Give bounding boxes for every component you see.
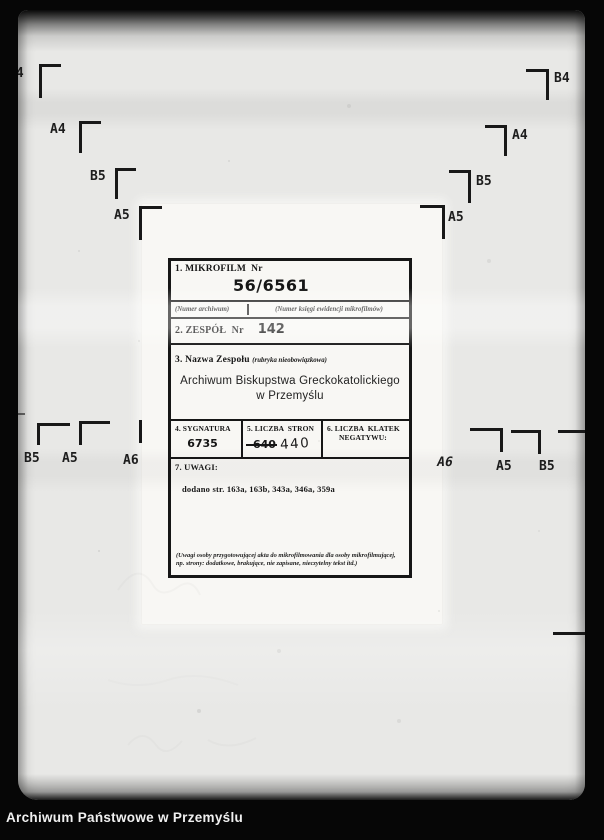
liczba-klatek-label-line2: NEGATYWU: — [339, 433, 406, 442]
archive-name: Archiwum Państwowe w Przemyślu — [6, 810, 243, 825]
frame-mark-bracket-b5-midleft — [37, 423, 70, 445]
liczba-klatek-label-line1: 6. LICZBA KLATEK — [327, 424, 406, 433]
frame-mark-bracket-b4-left — [39, 64, 61, 98]
frame-mark-label-b5-midright: B5 — [539, 460, 555, 473]
frame-mark-bracket-b5-right — [449, 170, 471, 203]
liczba-stron-crossed-out: 640 — [253, 438, 276, 451]
sygnatura-label: 4. SYGNATURA — [175, 424, 238, 433]
frame-mark-bracket-a5-right — [420, 205, 445, 239]
uwagi-label: 7. UWAGI: — [175, 462, 405, 473]
caption-numer-archiwum: (Numer archiwum) — [171, 306, 247, 314]
frame-mark-label-b4-right: B4 — [554, 72, 570, 85]
liczba-stron-handwritten: 440 — [279, 435, 310, 453]
frame-mark-label-a6-midleft: A6 — [123, 454, 139, 467]
form-row-captions: (Numer archiwum) (Numer księgi ewidencji… — [171, 302, 409, 319]
frame-mark-bracket-a5-midleft — [79, 421, 110, 445]
frame-mark-label-a6-midright: A6 — [436, 456, 454, 469]
zespol-label: 2. ZESPÓŁ Nr — [175, 325, 244, 336]
nazwa-value-line2: w Przemyślu — [175, 389, 405, 404]
frame-mark-label-a4-right: A4 — [512, 129, 528, 142]
frame-mark-bracket-a4-left — [79, 121, 101, 153]
mikrofilm-label: 1. MIKROFILM Nr — [175, 264, 405, 275]
ghost-writing — [58, 550, 358, 780]
microfilm-frame: B4 A4 B5 A5 B4 A4 B5 A5 B5 A5 A6 A6 A5 B… — [0, 0, 604, 840]
uwagi-value: dodano str. 163a, 163b, 343a, 346a, 359a — [182, 484, 405, 494]
frame-mark-label-a5-midright: A5 — [496, 460, 512, 473]
liczba-stron-value: 640440 — [247, 435, 318, 453]
cell-sygnatura: 4. SYGNATURA 6735 — [171, 421, 243, 457]
form-row-counts: 4. SYGNATURA 6735 5. LICZBA STRON 640440… — [171, 421, 409, 459]
cell-liczba-klatek: 6. LICZBA KLATEK NEGATYWU: — [323, 421, 409, 457]
frame-mark-bracket-a4-right — [485, 125, 507, 156]
frame-mark-bracket-a5-midright — [470, 428, 503, 452]
frame-mark-label-a5-left: A5 — [114, 209, 130, 222]
caption-numer-ksiegi: (Numer księgi ewidencji mikrofilmów) — [249, 306, 409, 314]
frame-edge-tick-lower-right — [553, 632, 585, 635]
frame-mark-bracket-a5-left — [139, 206, 162, 240]
frame-mark-label-b5-midleft: B5 — [24, 452, 40, 465]
frame-mark-label-a5-midleft: A5 — [62, 452, 78, 465]
frame-mark-bracket-b5-left — [115, 168, 136, 199]
nazwa-value-line1: Archiwum Biskupstwa Greckokatolickiego — [175, 374, 405, 389]
frame-edge-tick-upper-right — [558, 430, 585, 433]
nazwa-label: 3. Nazwa Zespołu — [175, 355, 252, 365]
frame-mark-label-b5-right: B5 — [476, 175, 492, 188]
frame-mark-bracket-a6-midleft — [139, 420, 143, 443]
frame-mark-label-a5-right: A5 — [448, 211, 464, 224]
frame-mark-label-b5-left: B5 — [90, 170, 106, 183]
zespol-number: 142 — [258, 323, 285, 337]
form-row-zespol: 2. ZESPÓŁ Nr 142 — [171, 319, 409, 345]
frame-mark-label-a4-left: A4 — [50, 123, 66, 136]
footer-bar: Archiwum Państwowe w Przemyślu — [0, 800, 604, 840]
form-row-nazwa: 3. Nazwa Zespołu (rubryka nieobowiązkowa… — [171, 345, 409, 421]
frame-mark-label-b4-left: B4 — [18, 67, 24, 80]
cell-liczba-stron: 5. LICZBA STRON 640440 — [243, 421, 323, 457]
film-area: B4 A4 B5 A5 B4 A4 B5 A5 B5 A5 A6 A6 A5 B… — [18, 10, 585, 800]
form-row-mikrofilm: 1. MIKROFILM Nr 56/6561 — [171, 261, 409, 302]
frame-mark-bracket-b4-right — [526, 69, 549, 100]
microfilm-card-form: 1. MIKROFILM Nr 56/6561 (Numer archiwum)… — [168, 258, 412, 578]
frame-edge-tick-left — [18, 413, 25, 415]
sygnatura-value: 6735 — [175, 437, 238, 450]
liczba-stron-label: 5. LICZBA STRON — [247, 424, 318, 433]
frame-mark-bracket-b5-midright — [511, 430, 541, 454]
film-dust-specks — [18, 10, 20, 12]
nazwa-label-note: (rubryka nieobowiązkowa) — [252, 357, 327, 364]
nazwa-value: Archiwum Biskupstwa Greckokatolickiego w… — [175, 374, 405, 404]
mikrofilm-number: 56/6561 — [233, 277, 405, 295]
